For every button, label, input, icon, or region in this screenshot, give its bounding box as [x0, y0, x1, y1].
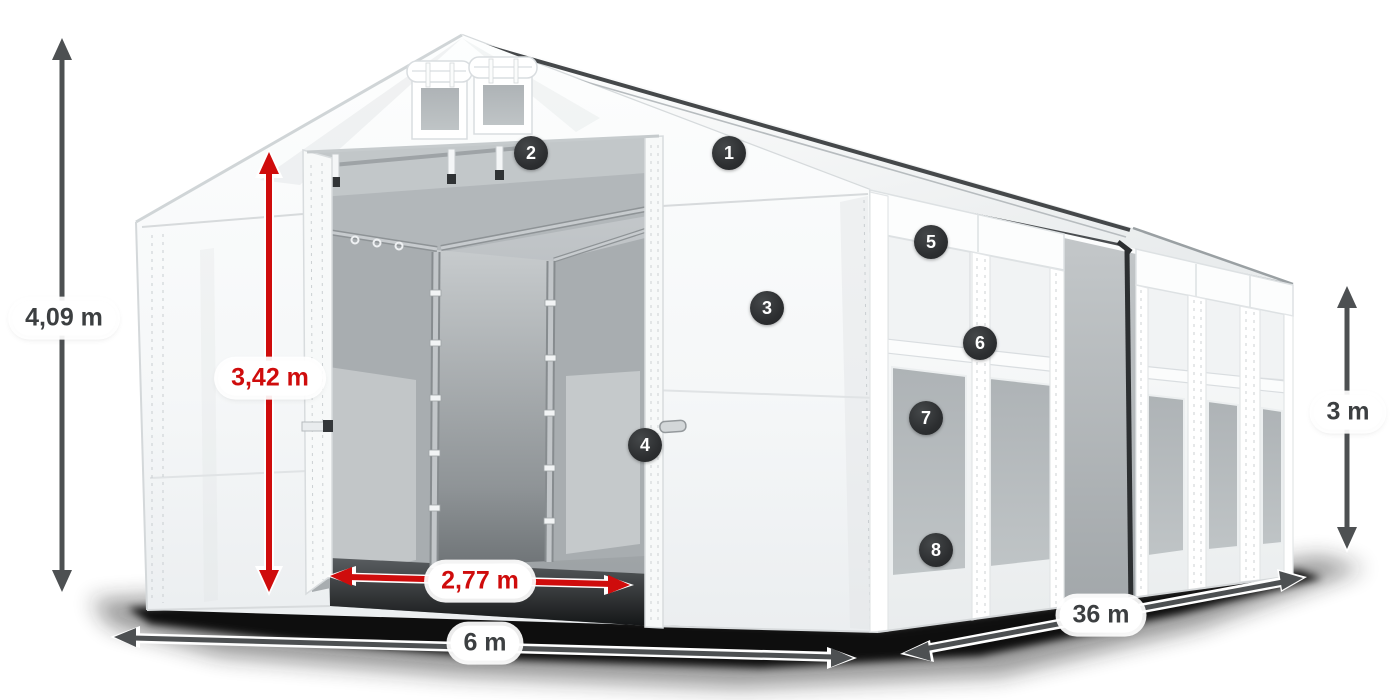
length-label: 36 m [1060, 598, 1143, 633]
vent-window-right [469, 57, 537, 134]
door-handle [660, 420, 687, 433]
callout-7[interactable]: 7 [909, 401, 943, 435]
entrance-opening [302, 136, 686, 628]
callout-5[interactable]: 5 [914, 225, 948, 259]
side-open-slot [1064, 238, 1140, 615]
side-height-value: 3 m [1326, 398, 1369, 426]
product-diagram-canvas: 4,09 m 3,42 m 2,77 m 6 m 36 m 3 m 1 2 3 … [0, 0, 1400, 700]
entrance-height-label: 3,42 m [218, 361, 322, 396]
entrance-height-value: 3,42 m [231, 364, 309, 392]
callout-8[interactable]: 8 [919, 533, 953, 567]
side-height-label: 3 m [1313, 395, 1382, 430]
total-height-label: 4,09 m [12, 301, 116, 336]
width-value: 6 m [463, 629, 506, 657]
entrance-width-label: 2,77 m [428, 564, 532, 599]
callout-4[interactable]: 4 [628, 428, 662, 462]
total-height-value: 4,09 m [25, 304, 103, 332]
callout-1[interactable]: 1 [712, 136, 746, 170]
callout-3[interactable]: 3 [750, 291, 784, 325]
callout-6[interactable]: 6 [963, 326, 997, 360]
vent-window-left [407, 61, 472, 139]
entrance-width-value: 2,77 m [441, 567, 519, 595]
length-value: 36 m [1073, 601, 1130, 629]
tent-illustration [0, 0, 1400, 700]
callout-2[interactable]: 2 [514, 136, 548, 170]
width-label: 6 m [450, 626, 519, 661]
